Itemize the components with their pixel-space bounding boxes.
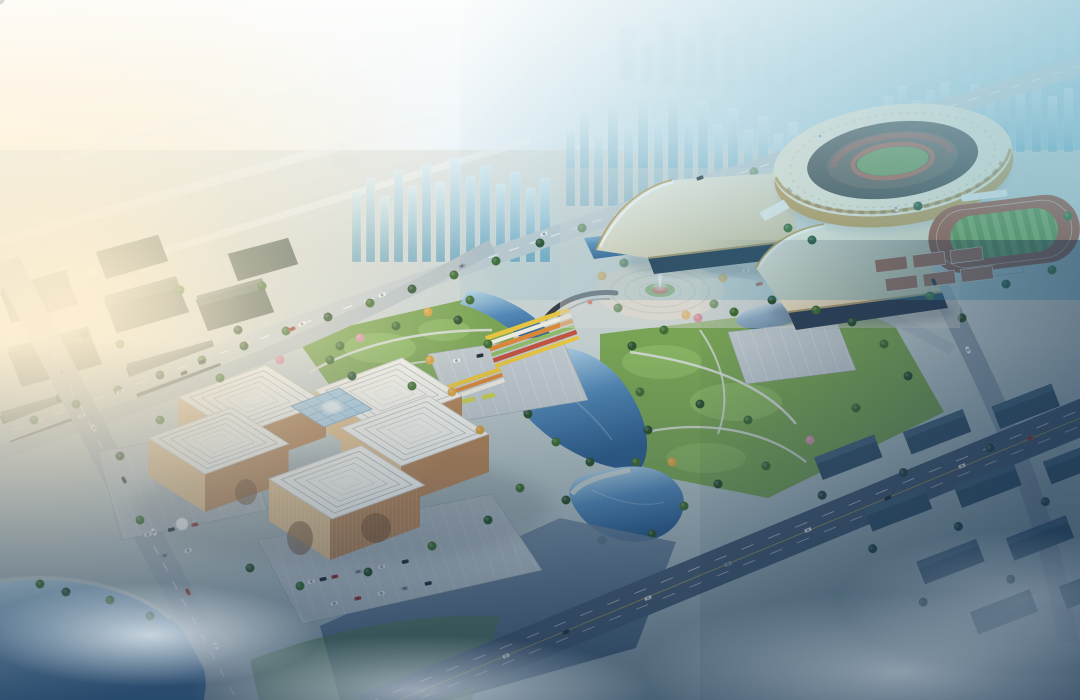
aerial-rendering: Aerial dusk rendering of a civic culture… bbox=[0, 0, 1080, 700]
rendering-canvas: Aerial dusk rendering of a civic culture… bbox=[0, 0, 1080, 700]
atmosphere-overlays bbox=[0, 0, 1080, 700]
